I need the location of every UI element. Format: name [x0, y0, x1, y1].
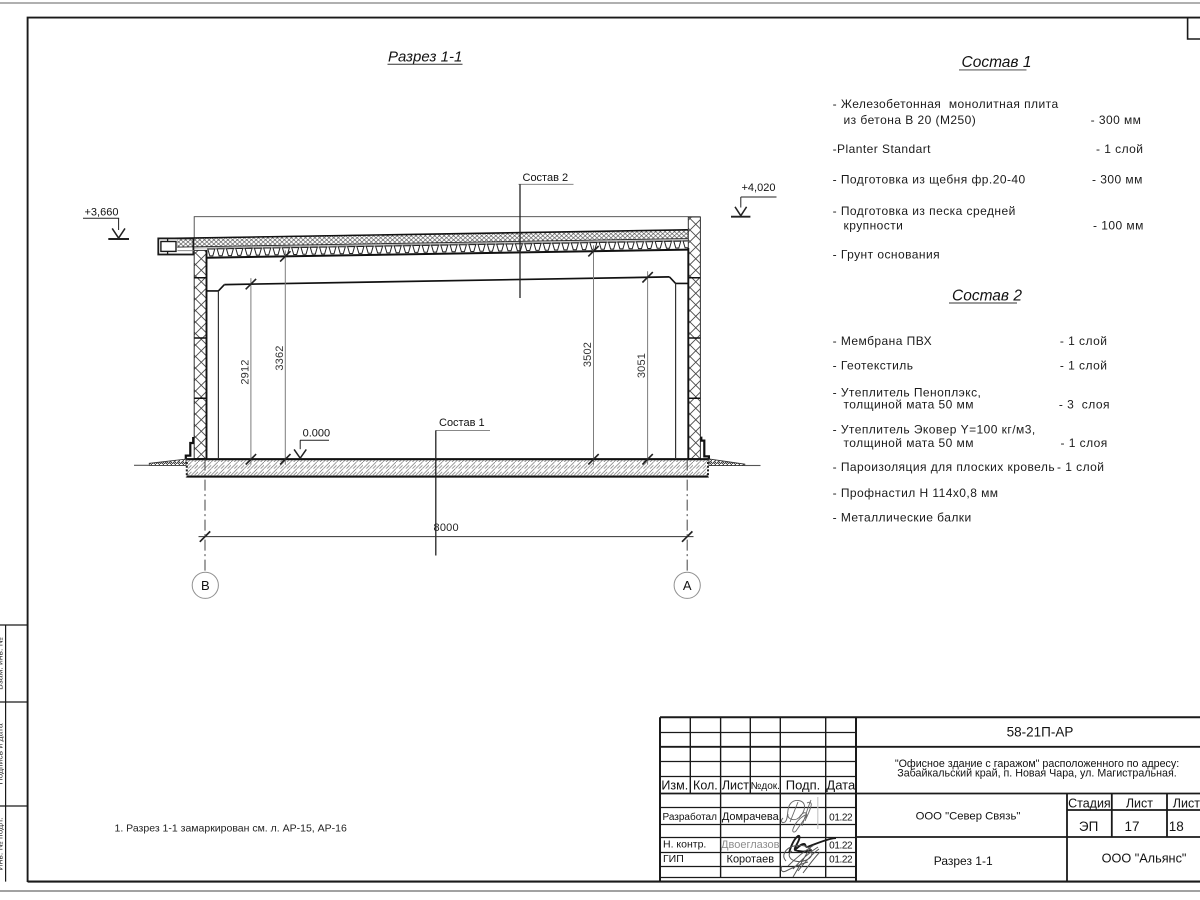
svg-text:- Подготовка из щебня фр.20-40: - Подготовка из щебня фр.20-40 — [833, 173, 1026, 187]
svg-text:из бетона В 20 (М250): из бетона В 20 (М250) — [844, 113, 977, 127]
svg-text:2912: 2912 — [239, 359, 251, 384]
svg-text:- Пароизоляция для плоских кро: - Пароизоляция для плоских кровель — [833, 460, 1055, 474]
svg-text:Состав 2: Состав 2 — [523, 172, 569, 184]
svg-text:Лист: Лист — [1126, 797, 1153, 811]
svg-text:толщиной мата 50 мм: толщиной мата 50 мм — [844, 436, 974, 450]
svg-text:№док.: №док. — [751, 781, 780, 792]
svg-text:- Мембрана ПВХ: - Мембрана ПВХ — [833, 334, 933, 348]
svg-text:Подп.: Подп. — [786, 778, 821, 793]
svg-text:Состав 2: Состав 2 — [952, 288, 1022, 305]
svg-text:Домрачева: Домрачева — [722, 811, 780, 823]
svg-text:ЭП: ЭП — [1079, 819, 1098, 834]
svg-text:3502: 3502 — [582, 342, 594, 367]
svg-text:0.000: 0.000 — [303, 428, 331, 440]
svg-text:-Planter Standart: -Planter Standart — [833, 142, 932, 156]
svg-text:Дата: Дата — [826, 778, 856, 793]
svg-text:- Металлические балки: - Металлические балки — [833, 511, 972, 525]
svg-text:3051: 3051 — [636, 353, 648, 378]
svg-text:3362: 3362 — [274, 345, 286, 370]
svg-text:- 1 слой: - 1 слой — [1060, 334, 1107, 348]
svg-text:18: 18 — [1169, 819, 1184, 834]
svg-text:Коротаев: Коротаев — [727, 854, 775, 866]
svg-text:- 3 слоя: - 3 слоя — [1059, 398, 1110, 412]
svg-text:+4,020: +4,020 — [742, 182, 776, 194]
svg-text:- 100 мм: - 100 мм — [1093, 219, 1144, 233]
svg-text:Изм.: Изм. — [661, 779, 688, 793]
svg-text:8000: 8000 — [434, 522, 459, 534]
svg-text:ООО "Север Связь": ООО "Север Связь" — [916, 811, 1021, 823]
svg-text:- 1 слой: - 1 слой — [1057, 460, 1104, 474]
svg-text:1. Разрез 1-1 замаркирован см.: 1. Разрез 1-1 замаркирован см. л. АР-15,… — [115, 823, 347, 835]
svg-text:- Железобетонная монолитная п: - Железобетонная монолитная плита — [833, 97, 1059, 111]
svg-text:Состав 1: Состав 1 — [962, 54, 1032, 71]
svg-text:58-21П-АР: 58-21П-АР — [1007, 725, 1074, 740]
svg-text:Взам. инв. №: Взам. инв. № — [0, 637, 4, 690]
svg-text:Состав 1: Состав 1 — [439, 417, 485, 429]
svg-text:- Профнастил Н 114х0,8 мм: - Профнастил Н 114х0,8 мм — [833, 486, 999, 500]
svg-text:- 1 слоя: - 1 слоя — [1061, 436, 1108, 450]
svg-text:Инв. № подл.: Инв. № подл. — [0, 818, 4, 871]
svg-text:Кол.: Кол. — [693, 779, 718, 793]
svg-text:- 1 слой: - 1 слой — [1096, 142, 1143, 156]
svg-text:ООО "Альянс": ООО "Альянс" — [1102, 852, 1187, 866]
svg-text:- 1 слой: - 1 слой — [1060, 359, 1107, 373]
svg-text:Разрез 1-1: Разрез 1-1 — [934, 854, 993, 868]
svg-text:Подпись и дата: Подпись и дата — [0, 723, 4, 784]
svg-text:Стадия: Стадия — [1068, 797, 1111, 811]
svg-text:01.22: 01.22 — [829, 841, 853, 852]
svg-text:+3,660: +3,660 — [85, 207, 119, 219]
svg-text:- 300 мм: - 300 мм — [1092, 173, 1143, 187]
svg-text:толщиной мата 50 мм: толщиной мата 50 мм — [844, 398, 974, 412]
svg-text:- Подготовка из песка средней: - Подготовка из песка средней — [833, 204, 1016, 218]
svg-text:Забайкальский край, п. Новая Ч: Забайкальский край, п. Новая Чара, ул. М… — [897, 768, 1176, 780]
svg-text:Двоеглазов: Двоеглазов — [721, 839, 780, 851]
svg-text:- 300 мм: - 300 мм — [1091, 113, 1142, 127]
svg-text:Листов: Листов — [1173, 797, 1200, 811]
svg-text:Разработал: Разработал — [663, 811, 718, 823]
svg-text:- Утеплитель Эковер Y=100 кг/м: - Утеплитель Эковер Y=100 кг/м3, — [833, 423, 1036, 437]
svg-text:В: В — [201, 578, 210, 593]
svg-text:Разрез 1-1: Разрез 1-1 — [388, 49, 462, 66]
svg-text:- Геотекстиль: - Геотекстиль — [833, 359, 914, 373]
svg-text:17: 17 — [1124, 819, 1139, 834]
svg-text:- Грунт основания: - Грунт основания — [833, 248, 941, 262]
svg-text:01.22: 01.22 — [829, 813, 853, 824]
svg-text:ГИП: ГИП — [663, 853, 684, 865]
svg-text:01.22: 01.22 — [829, 855, 853, 866]
svg-text:крупности: крупности — [844, 219, 904, 233]
svg-text:Лист: Лист — [722, 779, 749, 793]
svg-text:Н. контр.: Н. контр. — [663, 839, 706, 851]
svg-text:А: А — [683, 578, 692, 593]
